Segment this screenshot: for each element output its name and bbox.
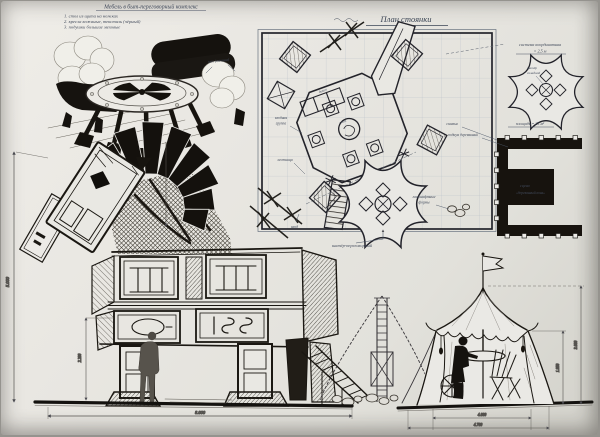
label-stage2: «деревянный конь» bbox=[516, 190, 545, 195]
label-landscape2: формы bbox=[419, 201, 430, 205]
body-panel-1 bbox=[120, 257, 178, 299]
label-entrance: вход bbox=[291, 225, 298, 229]
plan-title: План стоянки bbox=[380, 14, 432, 24]
dim-height-text: 5.000 bbox=[5, 276, 10, 287]
dim-leg-text: 2.200 bbox=[78, 354, 82, 363]
notes-item-3: 3. подушки большие меховые bbox=[64, 25, 120, 30]
site-plan: План стоянки bbox=[250, 14, 583, 248]
label-system2: = 2,5 м bbox=[534, 49, 547, 55]
dim-tent-inner-text: 1.950 bbox=[556, 364, 560, 373]
dim-tent-inner-width-text: 4.000 bbox=[478, 413, 487, 417]
notes-title: Мебель в быт-переговорный комплекс bbox=[103, 4, 198, 11]
label-entry2: группа bbox=[276, 122, 287, 126]
header-notes: Мебель в быт-переговорный комплекс 1. ст… bbox=[64, 4, 206, 30]
hind-leg bbox=[286, 338, 308, 400]
body-panel-2 bbox=[206, 255, 266, 298]
molding-band bbox=[108, 302, 306, 309]
label-tr-tent2: складной bbox=[527, 70, 540, 75]
dim-length-text: 8.000 bbox=[195, 410, 206, 415]
approval-scribble bbox=[334, 19, 358, 22]
label-tr-tent1: шатёр bbox=[527, 66, 537, 70]
body-panel-4 bbox=[196, 309, 268, 342]
label-tent: шатёр-переговорный bbox=[332, 243, 373, 248]
tower-rocks bbox=[366, 394, 398, 404]
scanned-sketch-photo: Мебель в быт-переговорный комплекс 1. ст… bbox=[0, 0, 600, 437]
dining-tent-plan: шатёр складной bbox=[509, 55, 583, 129]
label-landscape1: ландшафтные bbox=[411, 195, 435, 199]
horse-body bbox=[92, 248, 338, 350]
scale-figure-head bbox=[148, 332, 156, 340]
dim-tent-height-text: 3.000 bbox=[574, 341, 578, 350]
label-stairs: лестница bbox=[276, 158, 293, 162]
label-system1: система координатная bbox=[519, 42, 561, 47]
notes-item-1: 1. стол из щита на ножках bbox=[64, 14, 118, 19]
viewing-wall-plan: сцена «деревянный конь» bbox=[495, 136, 583, 239]
tassel bbox=[439, 348, 443, 355]
label-stage1: сцена bbox=[520, 183, 530, 188]
dim-tent-width-text: 4.700 bbox=[474, 423, 483, 427]
label-entry1: входная bbox=[275, 116, 287, 120]
horse-rump bbox=[302, 250, 338, 342]
label-bench: скамья bbox=[446, 122, 457, 126]
tassel bbox=[521, 346, 525, 353]
body-panel-3 bbox=[114, 311, 180, 343]
label-podium: подиум деревянный bbox=[448, 132, 478, 137]
label-area: площадь = 25 м² bbox=[516, 121, 545, 126]
concept-drawing: Мебель в быт-переговорный комплекс 1. ст… bbox=[0, 0, 600, 437]
